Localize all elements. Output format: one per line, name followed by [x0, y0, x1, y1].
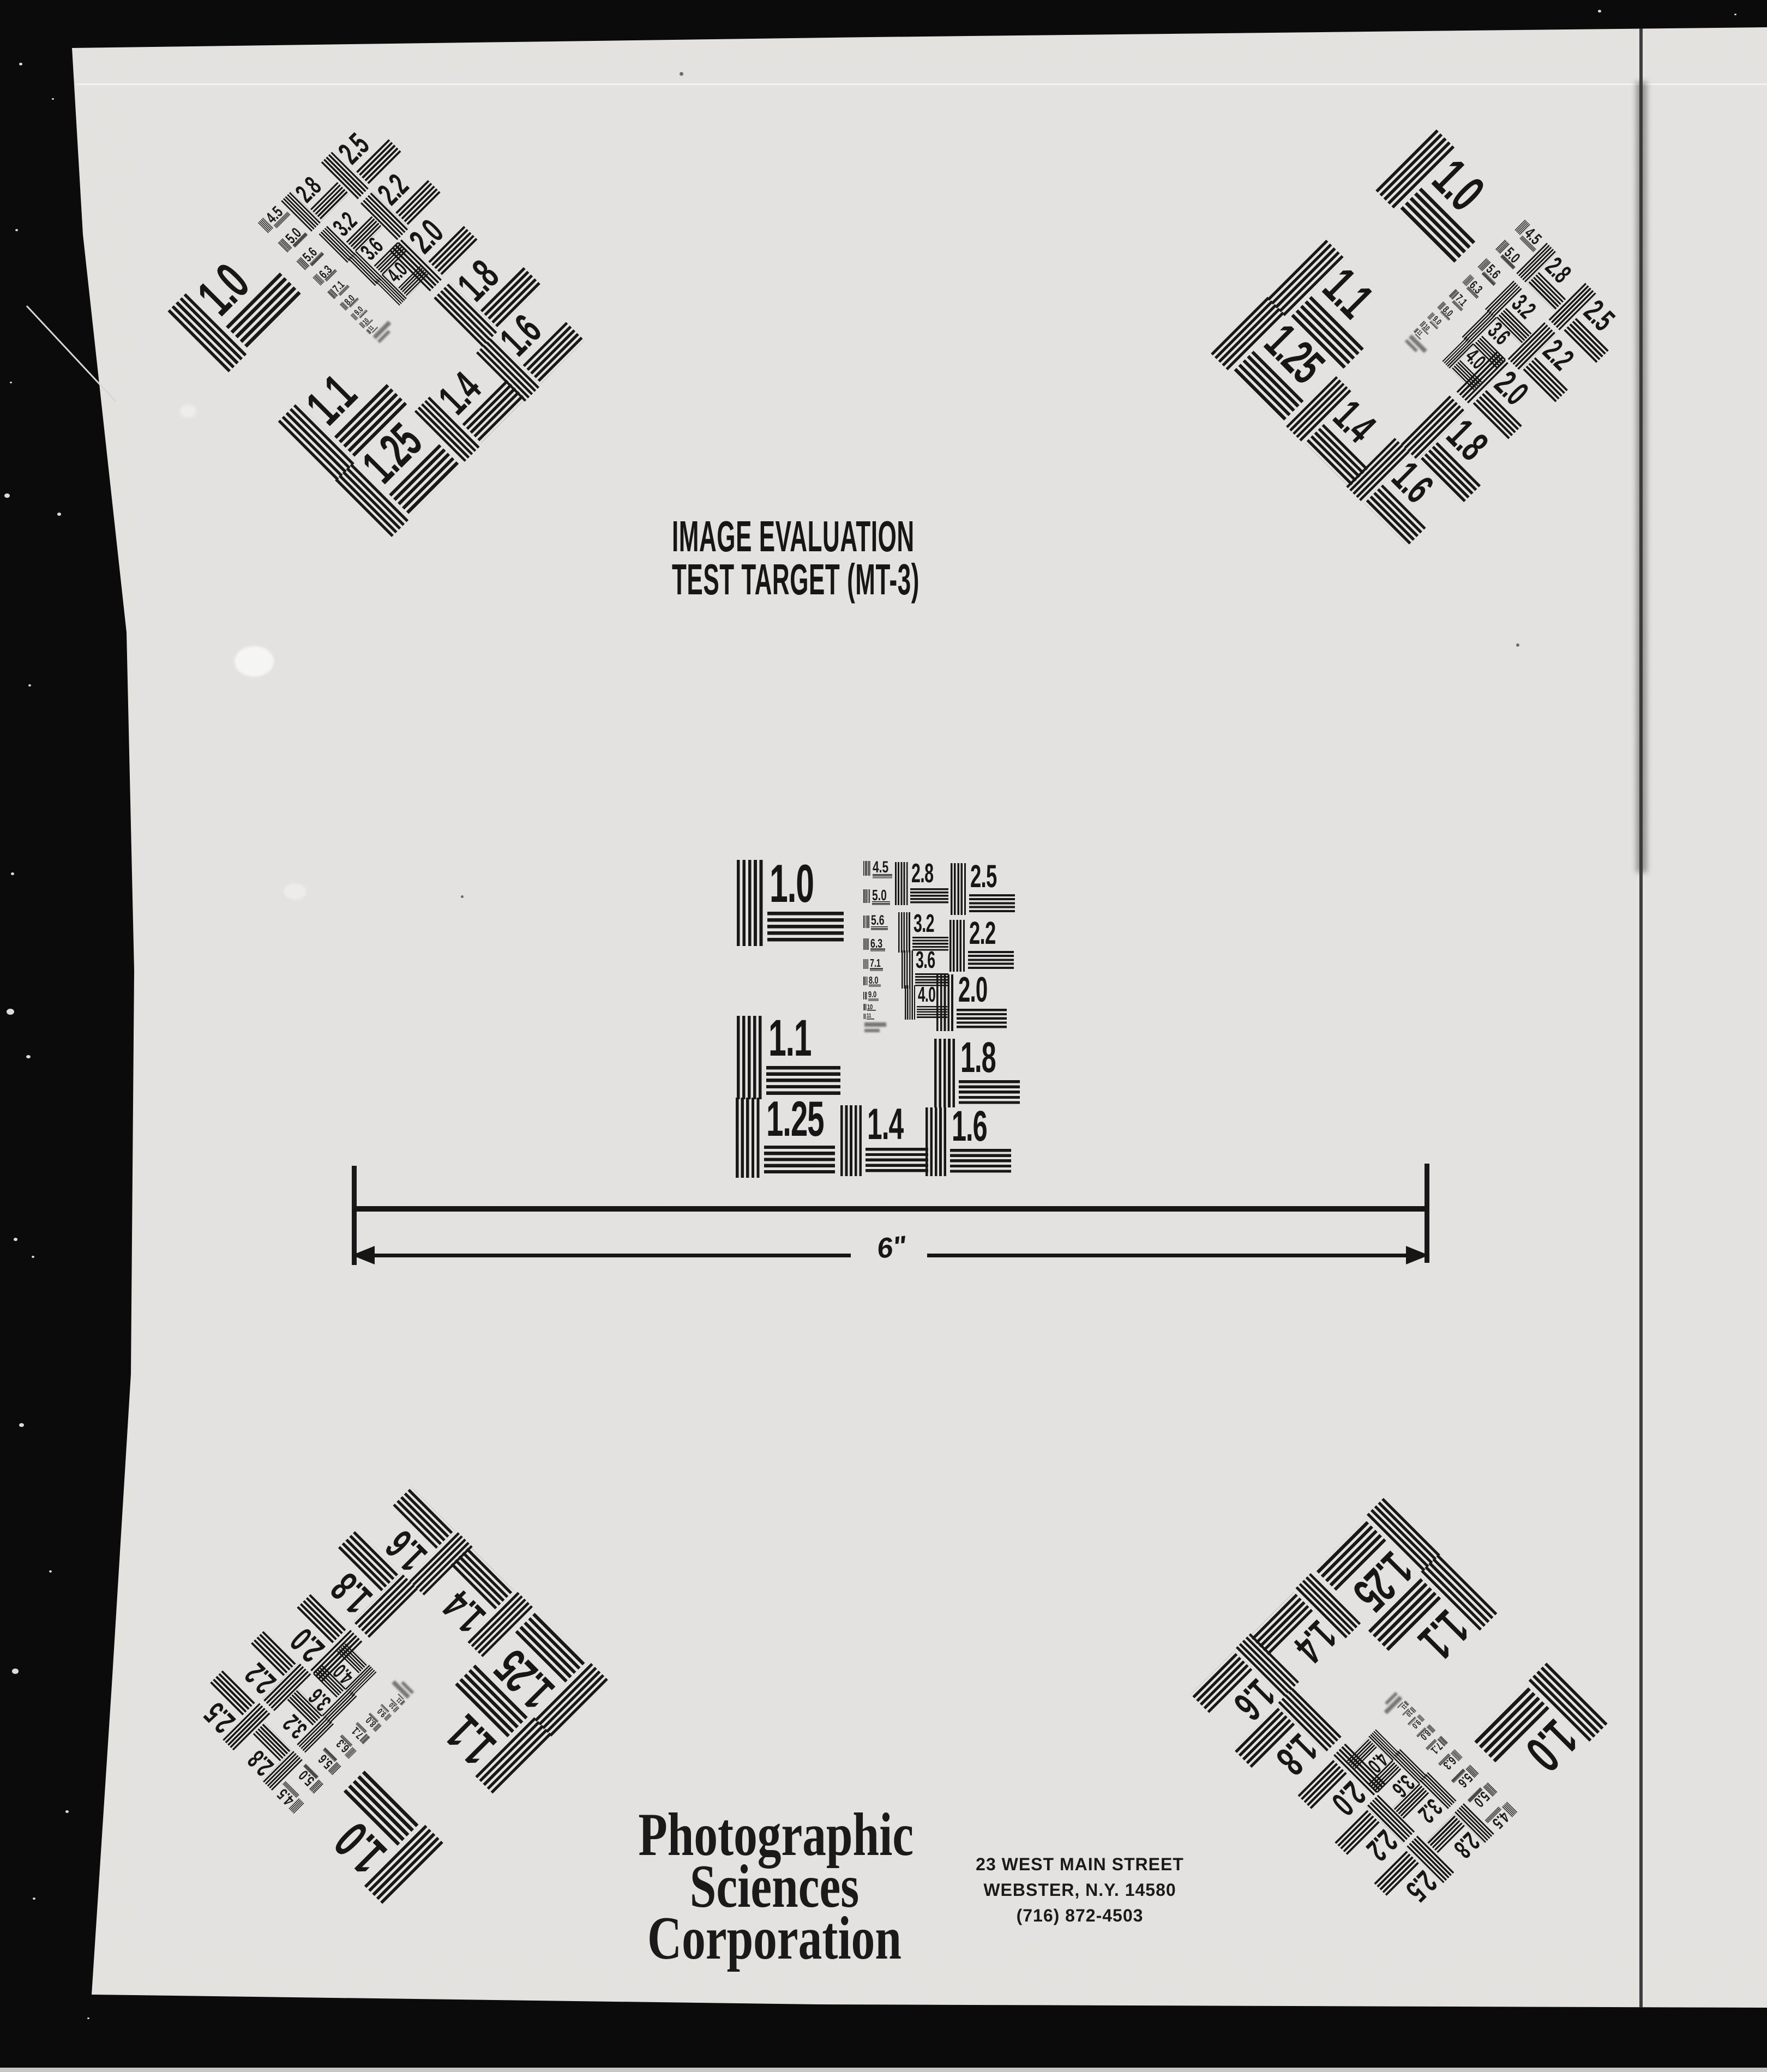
- dust-speck: [52, 98, 54, 100]
- vertical-bars: [863, 992, 867, 999]
- vertical-bars: [901, 950, 914, 989]
- scale-arrow-left-segment: [366, 1254, 851, 1257]
- vertical-bars: [863, 1014, 866, 1019]
- vertical-bars: [949, 920, 966, 972]
- patch-value-label: 2.2: [969, 918, 995, 950]
- patch-value-label: 1.6: [952, 1105, 987, 1147]
- company-imprint: Photographic Sciences Corporation: [600, 1809, 949, 1965]
- resolution-target-bottom-left: 1.01.11.251.41.61.82.02.22.52.83.23.64.0…: [199, 1487, 620, 1907]
- horizontal-bars: [873, 874, 892, 878]
- address-line1: 23 WEST MAIN STREET: [971, 1852, 1189, 1877]
- dust-speck: [11, 872, 14, 875]
- page-title: IMAGE EVALUATION TEST TARGET (MT-3): [672, 515, 1122, 601]
- vertical-bars: [863, 889, 870, 903]
- patch-value-label: 2.0: [958, 972, 987, 1008]
- vertical-bars: [925, 1107, 948, 1176]
- resolution-target-top-right: 1.01.11.251.41.61.82.02.22.52.83.23.64.0…: [1200, 127, 1620, 547]
- horizontal-bars: [959, 1080, 1020, 1106]
- vertical-bars: [898, 912, 911, 953]
- company-address: 23 WEST MAIN STREET WEBSTER, N.Y. 14580 …: [971, 1852, 1189, 1929]
- horizontal-bars: [867, 1019, 874, 1020]
- test-target-page: IMAGE EVALUATION TEST TARGET (MT-3) 6" P…: [0, 0, 1767, 2072]
- dust-speck: [7, 1009, 14, 1015]
- dust-speck: [15, 229, 18, 231]
- vertical-bars: [736, 1098, 762, 1178]
- micro-smudge: [864, 1029, 880, 1032]
- dust-speck: [49, 1570, 52, 1573]
- film-scan-frame: IMAGE EVALUATION TEST TARGET (MT-3) 6" P…: [0, 0, 1767, 2072]
- vertical-bars: [863, 959, 869, 969]
- vertical-bars: [951, 863, 967, 915]
- vertical-bars: [863, 977, 868, 985]
- patch-value-label: 2.5: [970, 861, 996, 893]
- patch-value-label: 1.8: [960, 1036, 996, 1079]
- dust-speck: [14, 1238, 17, 1241]
- horizontal-bars: [866, 1148, 928, 1174]
- vertical-bars: [863, 938, 869, 950]
- dust-dot: [680, 72, 683, 76]
- horizontal-bars: [867, 1010, 876, 1012]
- dust-speck: [28, 684, 31, 686]
- vertical-bars: [934, 1039, 957, 1107]
- micro-value-label: 4.5: [873, 859, 888, 876]
- dust-speck: [1598, 10, 1601, 13]
- scan-edge-strip: [0, 2068, 1767, 2072]
- horizontal-bars: [969, 894, 1015, 914]
- micro-value-label: 5.0: [872, 888, 887, 903]
- vertical-bars: [863, 915, 870, 928]
- dust-speck: [19, 1423, 24, 1427]
- emulsion-blotch: [180, 405, 196, 418]
- horizontal-bars: [868, 998, 879, 1001]
- emulsion-blotch: [284, 883, 306, 900]
- dust-speck: [10, 382, 12, 383]
- patch-value-label: 1.4: [867, 1103, 903, 1146]
- horizontal-bars: [764, 1146, 835, 1176]
- resolution-target-center: 1.01.11.251.41.61.82.02.22.52.83.23.64.0…: [734, 859, 995, 1191]
- dust-dot: [1516, 643, 1519, 647]
- patch-value-label: 1.25: [766, 1094, 824, 1144]
- emulsion-blotch: [235, 646, 274, 677]
- horizontal-bars: [767, 912, 844, 944]
- horizontal-bars: [910, 888, 948, 905]
- patch-value-label: 4.0: [918, 984, 935, 1005]
- dust-speck: [19, 63, 22, 65]
- dust-speck: [4, 493, 10, 498]
- company-line3: Corporation: [638, 1913, 910, 1965]
- dust-speck: [65, 1810, 69, 1813]
- horizontal-bars: [869, 984, 881, 987]
- scale-bar-length-label: 6": [875, 1230, 908, 1265]
- horizontal-bars: [957, 1009, 1007, 1031]
- vertical-bars: [840, 1105, 864, 1176]
- horizontal-bars: [871, 926, 887, 930]
- vertical-bars: [863, 861, 871, 876]
- dust-speck: [87, 2017, 89, 2019]
- horizontal-bars: [870, 948, 885, 951]
- dust-speck: [1734, 14, 1736, 15]
- scale-bar-main-line: [354, 1206, 1426, 1212]
- micro-value-label: 5.6: [871, 914, 885, 927]
- dust-speck: [57, 513, 61, 516]
- address-line3: (716) 872-4503: [971, 1903, 1189, 1929]
- horizontal-bars: [950, 1149, 1011, 1175]
- resolution-target-top-left: 1.01.11.251.41.61.82.02.22.52.83.23.64.0…: [165, 128, 585, 549]
- horizontal-bars: [968, 951, 1014, 971]
- vertical-bars: [737, 860, 765, 946]
- patch-value-label: 1.1: [768, 1013, 811, 1064]
- film-splice-smudge: [1636, 82, 1647, 872]
- dust-speck: [32, 1256, 34, 1258]
- address-line2: WEBSTER, N.Y. 14580: [971, 1877, 1189, 1903]
- scan-artifact-line: [76, 83, 1767, 85]
- dust-speck: [12, 1669, 19, 1674]
- page-title-line1: IMAGE EVALUATION: [672, 515, 919, 558]
- resolution-target-bottom-right: 1.01.11.251.41.61.82.02.22.52.83.23.64.0…: [1191, 1487, 1611, 1907]
- scale-arrow-right-head: [1406, 1246, 1429, 1264]
- micro-smudge: [864, 1022, 886, 1027]
- patch-value-label: 1.0: [770, 857, 814, 910]
- micro-value-label: 6.3: [870, 937, 882, 950]
- scale-arrow-right-segment: [927, 1254, 1414, 1257]
- patch-value-label: 3.2: [913, 911, 934, 936]
- vertical-bars: [737, 1016, 764, 1099]
- dust-speck: [26, 1055, 31, 1058]
- vertical-bars: [905, 985, 916, 1020]
- scale-arrow-left-head: [352, 1246, 375, 1264]
- dust-dot: [461, 895, 464, 898]
- vertical-bars: [863, 1004, 867, 1010]
- dust-speck: [33, 1898, 35, 1900]
- horizontal-bars: [870, 968, 883, 971]
- horizontal-bars: [917, 1006, 947, 1019]
- horizontal-bars: [872, 901, 890, 905]
- vertical-bars: [895, 862, 909, 905]
- page-title-line2: TEST TARGET (MT-3): [672, 558, 919, 601]
- patch-value-label: 3.6: [916, 949, 935, 972]
- patch-value-label: 2.8: [911, 860, 933, 887]
- micro-value-label: 7.1: [870, 958, 881, 969]
